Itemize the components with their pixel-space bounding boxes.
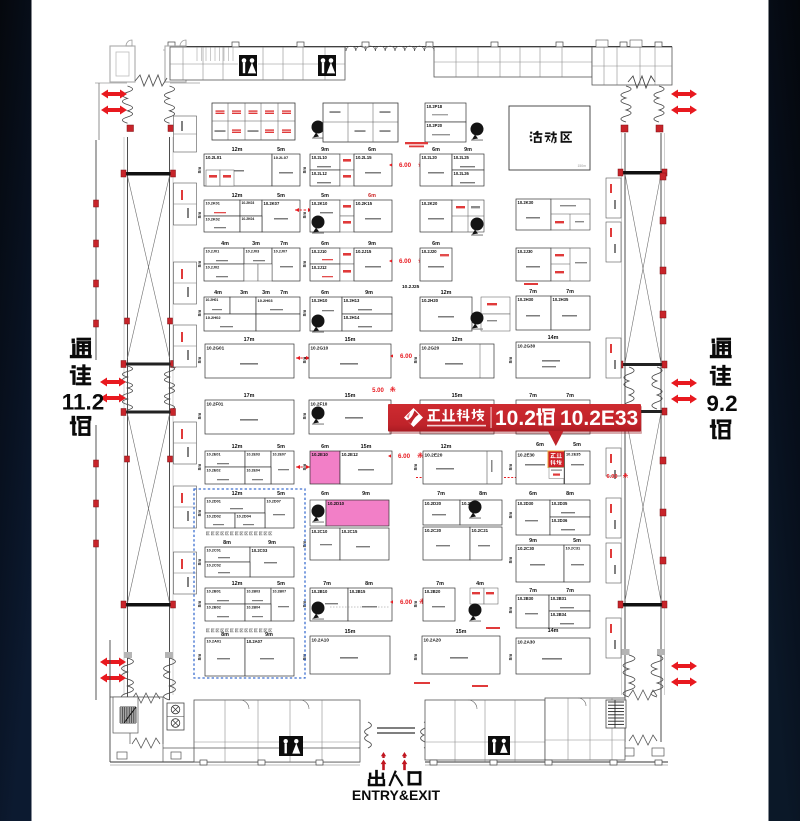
svg-text:10.2J01: 10.2J01 (206, 250, 220, 254)
svg-text:10.2K02: 10.2K02 (206, 218, 220, 222)
svg-text:10.2K30: 10.2K30 (518, 200, 535, 205)
svg-text:9m: 9m (529, 538, 537, 544)
svg-text:10.2H01: 10.2H01 (206, 298, 219, 302)
svg-text:10.2H35: 10.2H35 (553, 297, 570, 302)
svg-text:9m: 9m (368, 241, 376, 247)
svg-text:10.2E04: 10.2E04 (247, 468, 260, 472)
svg-text:10.2L10: 10.2L10 (312, 155, 328, 160)
svg-text:10.2D35: 10.2D35 (552, 501, 569, 506)
svg-text:10.2K10: 10.2K10 (312, 201, 329, 206)
svg-text:7m: 7m (529, 289, 537, 295)
svg-text:10.2E07: 10.2E07 (273, 452, 286, 456)
svg-text:8m: 8m (302, 310, 307, 317)
svg-text:10.2E12: 10.2E12 (342, 452, 359, 457)
svg-text:8m: 8m (508, 654, 513, 661)
svg-text:9m: 9m (321, 147, 329, 153)
svg-text:7m: 7m (566, 289, 574, 295)
svg-text:8m: 8m (197, 413, 202, 420)
svg-text:10.2B04: 10.2B04 (247, 605, 261, 609)
svg-text:6m: 6m (321, 290, 329, 296)
svg-text:10.2B03: 10.2B03 (247, 589, 261, 593)
svg-text:8m: 8m (413, 357, 418, 364)
svg-text:10.2C21: 10.2C21 (472, 528, 489, 533)
svg-text:10.2E35: 10.2E35 (566, 452, 581, 457)
svg-text:10.2B01: 10.2B01 (207, 590, 221, 594)
svg-text:8m: 8m (479, 491, 487, 497)
svg-text:17m: 17m (244, 393, 255, 399)
svg-text:3m: 3m (262, 290, 270, 296)
svg-text:10.2J12: 10.2J12 (312, 265, 328, 270)
svg-text:10.2C20: 10.2C20 (425, 528, 442, 533)
svg-text:15m: 15m (345, 629, 356, 635)
svg-text:12m: 12m (441, 290, 452, 296)
svg-text:10.2B31: 10.2B31 (551, 596, 568, 601)
svg-text:10.2L25: 10.2L25 (454, 155, 470, 160)
svg-text:7m: 7m (323, 581, 331, 587)
svg-text:4m: 4m (214, 290, 222, 296)
svg-text:4m: 4m (476, 581, 484, 587)
svg-text:8m: 8m (508, 357, 513, 364)
svg-text:10.2J03: 10.2J03 (246, 250, 260, 254)
svg-text:6.00: 6.00 (399, 258, 412, 265)
svg-text:15m: 15m (345, 337, 356, 343)
svg-text:10.2D01: 10.2D01 (207, 500, 221, 504)
svg-text:10.2H13: 10.2H13 (344, 298, 361, 303)
svg-text:10.2C02: 10.2C02 (207, 564, 221, 568)
svg-text:10.2K20: 10.2K20 (422, 201, 439, 206)
svg-text:10.2L20: 10.2L20 (422, 155, 438, 160)
svg-text:10.2D20: 10.2D20 (425, 501, 442, 506)
svg-text:12m: 12m (232, 147, 243, 153)
svg-text:9m: 9m (265, 632, 273, 638)
svg-text:8m: 8m (197, 261, 202, 268)
svg-text:10.2: 10.2 (495, 407, 536, 430)
svg-text:8m: 8m (197, 510, 202, 517)
svg-text:8m: 8m (508, 607, 513, 614)
svg-text:10.2A10: 10.2A10 (312, 637, 330, 642)
svg-text:10.2J25: 10.2J25 (402, 284, 420, 290)
svg-text:10.2J10: 10.2J10 (312, 249, 328, 254)
svg-text:10.2H03: 10.2H03 (258, 298, 274, 303)
svg-text:10.2C01: 10.2C01 (207, 549, 221, 553)
svg-text:10.2L07: 10.2L07 (274, 155, 289, 160)
svg-text:7m: 7m (529, 393, 537, 399)
svg-text:10.2H20: 10.2H20 (422, 298, 439, 303)
svg-text:10.2G30: 10.2G30 (518, 343, 536, 348)
svg-text:150m: 150m (578, 164, 587, 168)
svg-text:10.2H30: 10.2H30 (518, 297, 535, 302)
svg-text:ENTRY&EXIT: ENTRY&EXIT (352, 787, 441, 803)
svg-text:9m: 9m (268, 540, 276, 546)
svg-text:10.2F01: 10.2F01 (207, 401, 224, 406)
svg-text:10.2B07: 10.2B07 (273, 589, 287, 593)
svg-text:10.2J15: 10.2J15 (356, 249, 372, 254)
svg-text:10.2F10: 10.2F10 (311, 401, 328, 406)
svg-text:3m: 3m (252, 241, 260, 247)
svg-text:10.2C30: 10.2C30 (518, 546, 535, 551)
svg-text:10.2D07: 10.2D07 (267, 500, 281, 504)
svg-text:6.00: 6.00 (399, 162, 412, 169)
svg-text:6m: 6m (321, 444, 329, 450)
svg-text:10.2B10: 10.2B10 (312, 589, 329, 594)
svg-text:6.00: 6.00 (398, 453, 411, 460)
svg-text:12m: 12m (452, 337, 463, 343)
svg-text:10.2L26: 10.2L26 (454, 171, 470, 176)
svg-text:8m: 8m (302, 261, 307, 268)
svg-text:9m: 9m (362, 491, 370, 497)
svg-text:8m: 8m (302, 212, 307, 219)
svg-text:12m: 12m (232, 444, 243, 450)
svg-text:10.2B20: 10.2B20 (425, 589, 442, 594)
svg-text:10.2E30: 10.2E30 (518, 452, 536, 457)
svg-text:12m: 12m (232, 491, 243, 497)
svg-text:10.2K04: 10.2K04 (242, 217, 255, 221)
svg-text:15m: 15m (452, 393, 463, 399)
svg-text:4m: 4m (221, 241, 229, 247)
svg-text:8m: 8m (508, 464, 513, 471)
svg-text:6.00: 6.00 (607, 474, 618, 480)
svg-text:10.2B02: 10.2B02 (207, 606, 221, 610)
svg-text:5m: 5m (277, 581, 285, 587)
svg-text:5.00: 5.00 (372, 388, 384, 394)
svg-text:17m: 17m (244, 337, 255, 343)
svg-text:8m: 8m (197, 601, 202, 608)
svg-text:10.2J02: 10.2J02 (206, 266, 220, 270)
svg-text:8m: 8m (302, 357, 307, 364)
svg-text:10.2G01: 10.2G01 (207, 345, 225, 350)
svg-text:6.00: 6.00 (400, 599, 413, 606)
svg-text:8m: 8m (302, 413, 307, 420)
svg-text:5m: 5m (321, 193, 329, 199)
svg-text:10.2G10: 10.2G10 (311, 345, 329, 350)
svg-text:6m: 6m (368, 193, 376, 199)
svg-text:10.2E01: 10.2E01 (207, 453, 221, 457)
svg-text:8m: 8m (197, 654, 202, 661)
svg-text:10.2D10: 10.2D10 (328, 501, 345, 506)
svg-text:10.2G20: 10.2G20 (422, 345, 440, 350)
svg-text:3m: 3m (240, 290, 248, 296)
svg-text:14m: 14m (548, 335, 559, 341)
svg-text:10.2B30: 10.2B30 (518, 596, 535, 601)
svg-text:10.2A07: 10.2A07 (247, 639, 264, 644)
svg-text:10.2E20: 10.2E20 (425, 453, 443, 459)
svg-text:6m: 6m (536, 442, 544, 448)
svg-text:10.2E02: 10.2E02 (207, 469, 221, 473)
svg-text:10.2B15: 10.2B15 (350, 589, 367, 594)
svg-text:10.2C03: 10.2C03 (252, 548, 269, 553)
svg-text:8m: 8m (365, 581, 373, 587)
svg-text:12m: 12m (441, 444, 452, 450)
svg-text:10.2B34: 10.2B34 (551, 612, 568, 617)
svg-text:9m: 9m (464, 147, 472, 153)
svg-text:8m: 8m (566, 491, 574, 497)
svg-text:10.2K01: 10.2K01 (206, 202, 220, 206)
svg-text:10.2D30: 10.2D30 (518, 501, 535, 506)
svg-text:8m: 8m (197, 167, 202, 174)
svg-text:10.2C31: 10.2C31 (566, 546, 582, 551)
svg-text:8m: 8m (413, 464, 418, 471)
svg-text:7m: 7m (280, 290, 288, 296)
svg-text:10.2A30: 10.2A30 (518, 639, 536, 644)
svg-text:8m: 8m (197, 464, 202, 471)
svg-text:10.2D36: 10.2D36 (552, 518, 569, 523)
svg-text:6m: 6m (368, 147, 376, 153)
svg-text:6m: 6m (432, 241, 440, 247)
svg-text:10.2H14: 10.2H14 (344, 315, 361, 320)
svg-text:8m: 8m (413, 601, 418, 608)
svg-text:7m: 7m (437, 491, 445, 497)
svg-text:8m: 8m (508, 512, 513, 519)
svg-text:12m: 12m (232, 193, 243, 199)
svg-text:10.2C15: 10.2C15 (342, 529, 359, 534)
svg-text:10.2E33: 10.2E33 (560, 407, 638, 430)
svg-text:10.2H10: 10.2H10 (312, 298, 329, 303)
svg-text:8m: 8m (413, 654, 418, 661)
svg-text:6m: 6m (321, 491, 329, 497)
svg-text:10.2E03: 10.2E03 (247, 452, 260, 456)
svg-text:8m: 8m (197, 212, 202, 219)
svg-text:8m: 8m (197, 559, 202, 566)
svg-text:8m: 8m (197, 357, 202, 364)
svg-text:8m: 8m (223, 540, 231, 546)
svg-text:9m: 9m (365, 290, 373, 296)
svg-text:5m: 5m (277, 444, 285, 450)
svg-text:12m: 12m (232, 581, 243, 587)
svg-text:5m: 5m (277, 491, 285, 497)
svg-text:6m: 6m (321, 241, 329, 247)
svg-text:5m: 5m (277, 147, 285, 153)
svg-text:11.2: 11.2 (62, 390, 105, 415)
svg-text:15m: 15m (361, 444, 372, 450)
svg-text:15m: 15m (345, 393, 356, 399)
svg-text:10.2L15: 10.2L15 (356, 155, 373, 160)
svg-text:10.2L12: 10.2L12 (312, 171, 328, 176)
svg-text:10.2D02: 10.2D02 (207, 515, 221, 519)
svg-text:7m: 7m (566, 393, 574, 399)
svg-text:5m: 5m (573, 538, 581, 544)
svg-text:7m: 7m (529, 588, 537, 594)
svg-text:6m: 6m (529, 491, 537, 497)
svg-text:8m: 8m (197, 310, 202, 317)
svg-text:10.2L01: 10.2L01 (206, 155, 223, 160)
svg-text:7m: 7m (436, 581, 444, 587)
svg-text:5m: 5m (573, 442, 581, 448)
svg-text:10.2J07: 10.2J07 (274, 250, 288, 254)
svg-text:10.2K07: 10.2K07 (264, 201, 281, 206)
svg-text:10.2D04: 10.2D04 (237, 515, 252, 519)
svg-text:9.2: 9.2 (706, 391, 737, 416)
svg-text:10.2K15: 10.2K15 (356, 201, 373, 206)
svg-text:5m: 5m (277, 193, 285, 199)
svg-text:10.2P20: 10.2P20 (427, 123, 443, 128)
svg-text:15m: 15m (456, 629, 467, 635)
svg-text:8m: 8m (508, 557, 513, 564)
svg-text:7m: 7m (566, 588, 574, 594)
svg-text:6.00: 6.00 (400, 353, 413, 360)
svg-text:10.2A20: 10.2A20 (424, 637, 442, 642)
svg-text:6m: 6m (432, 147, 440, 153)
svg-text:14m: 14m (548, 628, 559, 634)
svg-text:10.2P18: 10.2P18 (427, 104, 443, 109)
svg-text:8m: 8m (302, 464, 307, 471)
svg-text:7m: 7m (280, 241, 288, 247)
svg-text:10.2E10: 10.2E10 (312, 452, 329, 457)
svg-text:10.2H02: 10.2H02 (206, 315, 222, 320)
svg-text:8m: 8m (221, 632, 229, 638)
svg-text:10.2J20: 10.2J20 (422, 249, 438, 254)
svg-text:10.2K03: 10.2K03 (242, 201, 255, 205)
svg-text:10.2A01: 10.2A01 (207, 639, 223, 644)
svg-text:10.2J30: 10.2J30 (518, 249, 534, 254)
svg-text:10.2C10: 10.2C10 (312, 529, 329, 534)
svg-text:8m: 8m (302, 167, 307, 174)
